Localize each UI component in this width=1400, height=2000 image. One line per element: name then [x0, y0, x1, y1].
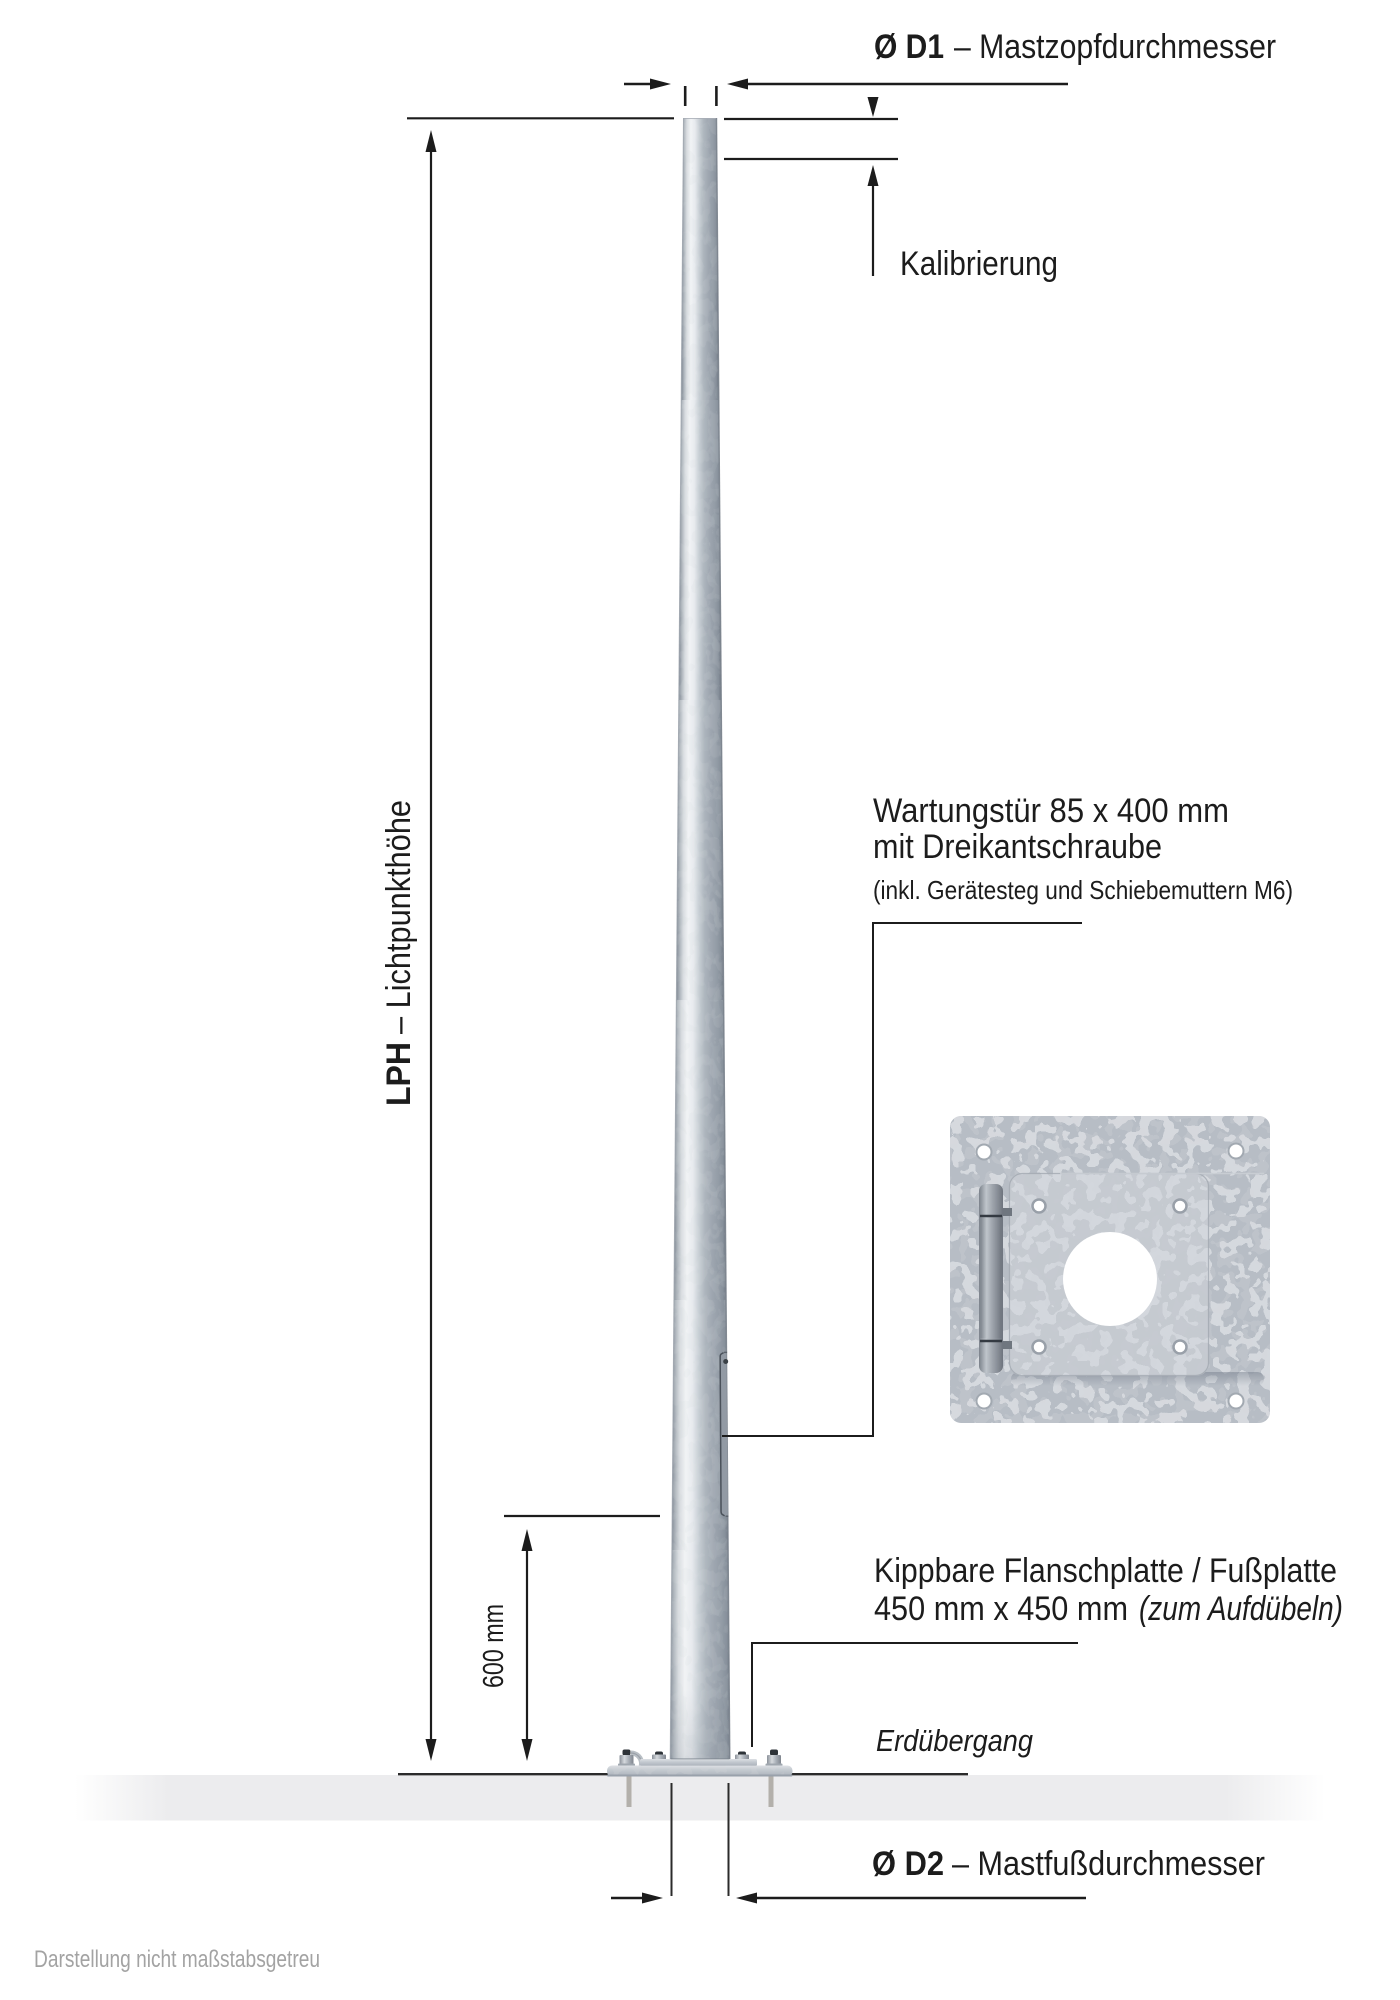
svg-text:(zum Aufdübeln): (zum Aufdübeln): [1139, 1590, 1343, 1628]
svg-text:600 mm: 600 mm: [478, 1604, 510, 1688]
svg-text:Darstellung nicht maßstabsgetr: Darstellung nicht maßstabsgetreu: [34, 1946, 320, 1973]
svg-text:– Mastzopfdurchmesser: – Mastzopfdurchmesser: [954, 28, 1276, 66]
svg-text:– Mastfußdurchmesser: – Mastfußdurchmesser: [952, 1845, 1265, 1883]
svg-text:LPH: LPH: [380, 1042, 418, 1106]
svg-text:(inkl. Gerätesteg und Schiebem: (inkl. Gerätesteg und Schiebemuttern M6): [873, 875, 1293, 905]
svg-text:Wartungstür 85 x 400 mm: Wartungstür 85 x 400 mm: [873, 792, 1229, 830]
svg-text:Kippbare Flanschplatte / Fußpl: Kippbare Flanschplatte / Fußplatte: [874, 1552, 1337, 1590]
svg-text:Ø D1: Ø D1: [874, 28, 944, 66]
svg-text:Kalibrierung: Kalibrierung: [900, 245, 1058, 283]
svg-text:450 mm x 450 mm: 450 mm x 450 mm: [874, 1590, 1128, 1628]
svg-text:mit Dreikantschraube: mit Dreikantschraube: [873, 828, 1162, 866]
svg-text:Erdübergang: Erdübergang: [876, 1723, 1033, 1758]
svg-text:Ø D2: Ø D2: [872, 1845, 944, 1883]
svg-text:– Lichtpunkthöhe: – Lichtpunkthöhe: [380, 800, 418, 1034]
